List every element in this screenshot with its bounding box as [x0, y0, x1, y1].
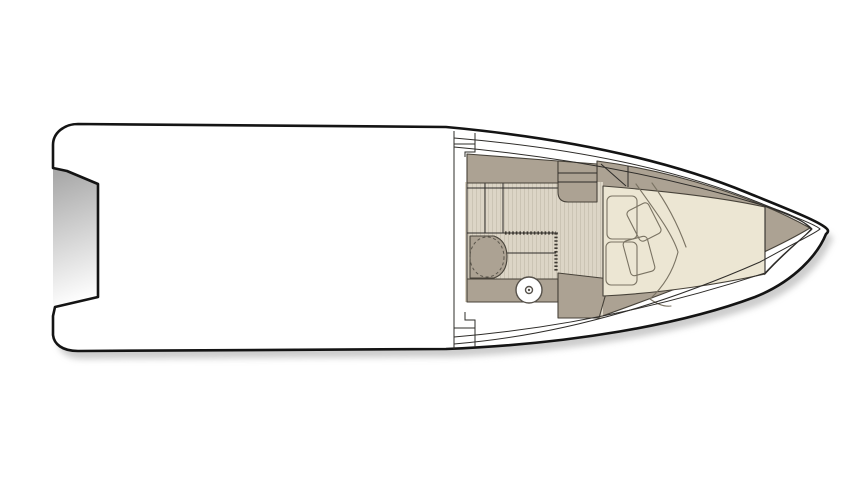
stern-notch-recess: [53, 168, 98, 316]
boat-plan-svg: [0, 0, 862, 485]
toilet-center-dot: [528, 289, 530, 291]
wetroom-counter: [467, 279, 558, 302]
boat-plan-canvas: [0, 0, 862, 485]
